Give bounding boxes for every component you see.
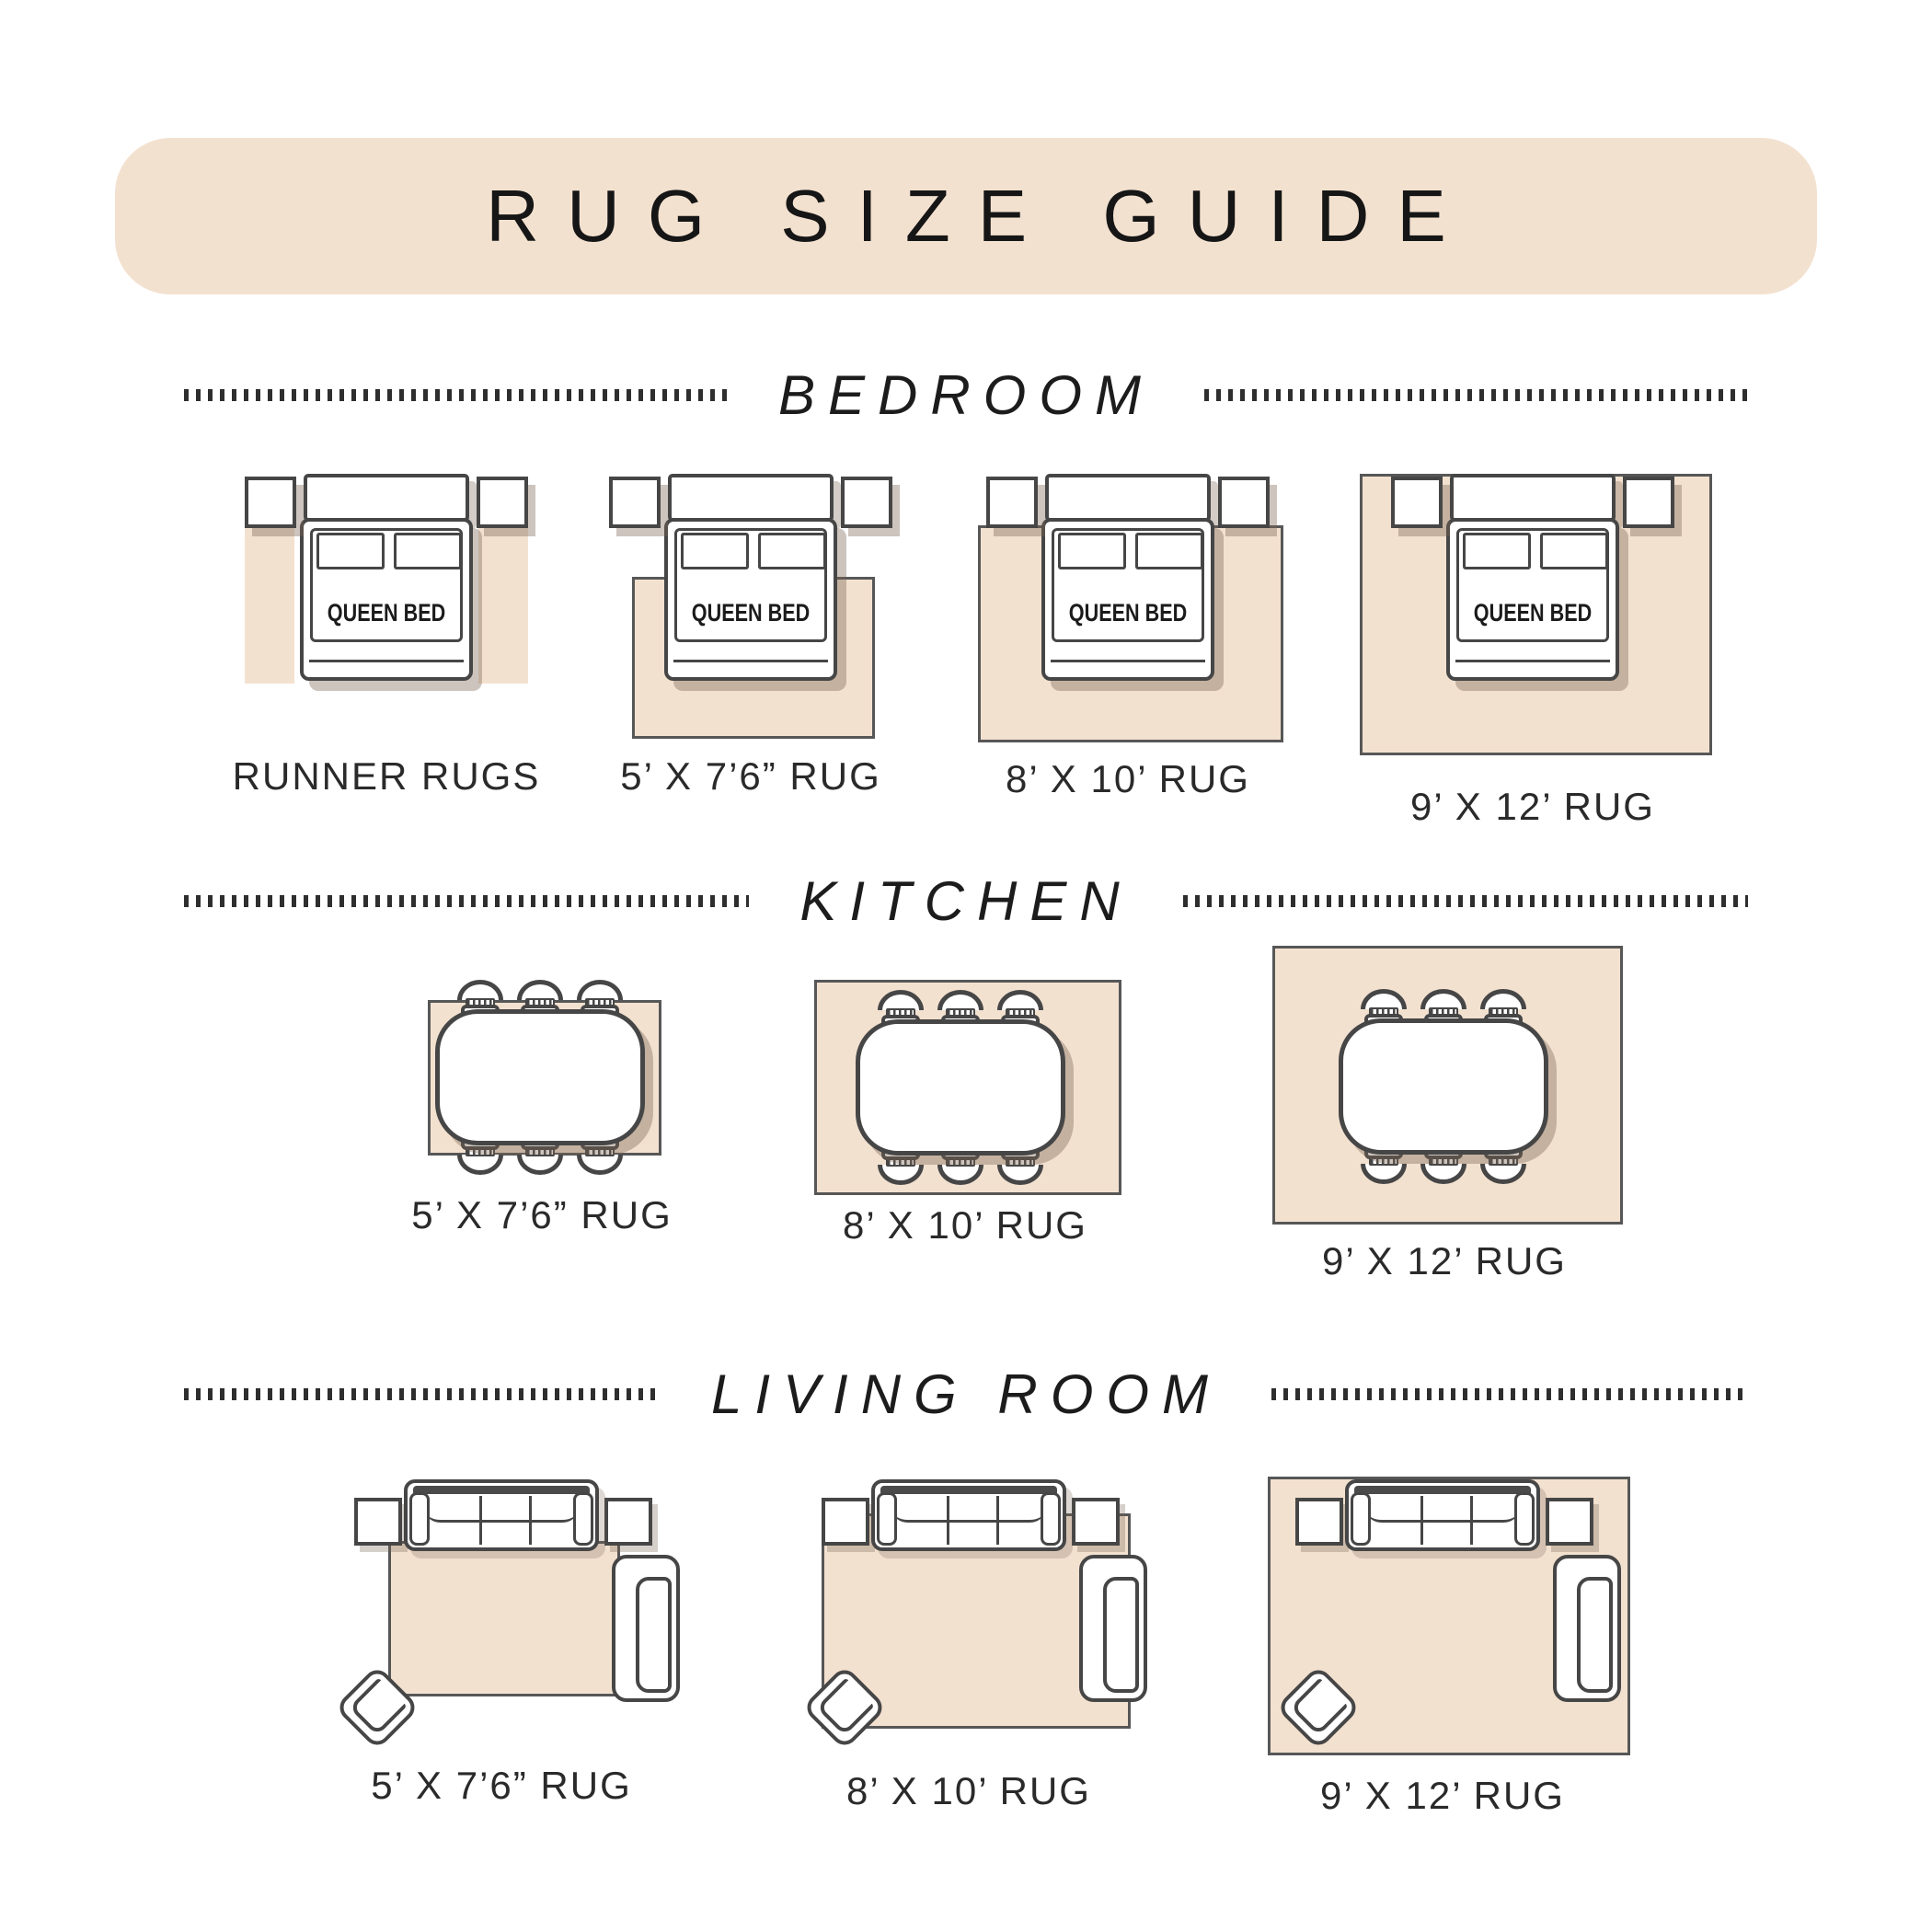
- dotted-divider: [1183, 895, 1748, 907]
- side-table: [1072, 1498, 1120, 1546]
- chair-back-icon: [457, 980, 503, 1000]
- nightstand: [841, 477, 892, 528]
- dotted-divider: [1204, 389, 1748, 401]
- footboard-line: [1455, 660, 1610, 662]
- footboard-line: [673, 660, 828, 662]
- sofa-arm: [877, 1492, 897, 1546]
- chair-back-icon: [1480, 989, 1526, 1009]
- kitchen-diagram-5x76-rug: 5’ X 7’6” RUG: [339, 943, 744, 1293]
- bed-label: QUEEN BED: [684, 599, 817, 627]
- chair-back-icon: [937, 990, 983, 1010]
- diagram-label: 9’ X 12’ RUG: [1242, 1239, 1647, 1283]
- lounge-chair: [1553, 1555, 1621, 1702]
- pillow: [681, 533, 749, 569]
- diagram-label: RUNNER RUGS: [193, 754, 580, 799]
- sofa-back-cushion: [893, 1494, 1044, 1523]
- side-table: [1546, 1498, 1593, 1546]
- queen-bed: QUEEN BED: [1041, 518, 1214, 681]
- footboard-line: [1051, 660, 1205, 662]
- living-room-section-title: LIVING ROOM: [711, 1363, 1221, 1426]
- nightstand: [477, 477, 528, 528]
- nightstand: [245, 477, 296, 528]
- lounge-chair: [1079, 1555, 1147, 1702]
- sofa-cushion-divider: [996, 1496, 999, 1545]
- queen-bed: QUEEN BED: [1446, 518, 1619, 681]
- chair-back-icon: [878, 990, 924, 1010]
- sofa-arm: [409, 1492, 430, 1546]
- chair-back-icon: [997, 1165, 1043, 1185]
- sofa: [404, 1479, 599, 1551]
- kitchen-section-header: KITCHEN: [184, 867, 1748, 935]
- bed-label: QUEEN BED: [320, 599, 453, 627]
- dotted-divider: [184, 1388, 661, 1400]
- pillow: [1058, 533, 1126, 569]
- lounge-chair-seat: [1577, 1577, 1613, 1693]
- bedroom-diagram-8x10-rug: QUEEN BED 8’ X 10’ RUG: [935, 465, 1321, 833]
- chair-back-icon: [997, 990, 1043, 1010]
- pillow: [1135, 533, 1203, 569]
- kitchen-diagram-9x12-rug: 9’ X 12’ RUG: [1242, 943, 1647, 1293]
- diagram-label: 5’ X 7’6” RUG: [558, 754, 944, 799]
- diagram-label: 8’ X 10’ RUG: [763, 1203, 1167, 1248]
- page-title: RUG SIZE GUIDE: [458, 174, 1473, 259]
- sofa-arm: [1514, 1492, 1535, 1546]
- side-table: [1295, 1498, 1343, 1546]
- nightstand: [1218, 477, 1270, 528]
- chair-back-icon: [1361, 1164, 1407, 1184]
- accent-chair-back: [816, 1677, 875, 1736]
- pillow: [1540, 533, 1608, 569]
- nightstand: [986, 477, 1038, 528]
- chair-back-icon: [517, 980, 563, 1000]
- pillow: [394, 533, 462, 569]
- living-room-section-header: LIVING ROOM: [184, 1360, 1748, 1428]
- kitchen-section-title: KITCHEN: [799, 869, 1132, 933]
- queen-bed: QUEEN BED: [664, 518, 837, 681]
- sofa: [871, 1479, 1066, 1551]
- dotted-divider: [1271, 1388, 1748, 1400]
- bed-label: QUEEN BED: [1466, 599, 1599, 627]
- sofa-arm: [573, 1492, 593, 1546]
- chair-back-icon: [457, 1155, 503, 1175]
- dining-set: [426, 980, 654, 1175]
- dotted-divider: [184, 389, 728, 401]
- chair-back-icon: [1480, 1164, 1526, 1184]
- sofa-arm: [1351, 1492, 1371, 1546]
- dining-set: [1329, 989, 1558, 1184]
- chair-back-icon: [1361, 989, 1407, 1009]
- chair-back-icon: [1420, 1164, 1466, 1184]
- bedroom-diagram-5x76-rug: QUEEN BED 5’ X 7’6” RUG: [558, 465, 944, 833]
- accent-chair-back: [1290, 1677, 1349, 1736]
- sofa-cushion-divider: [947, 1496, 949, 1545]
- runner-rug-right: [478, 525, 528, 684]
- bedroom-diagram-runner-rugs: QUEEN BED RUNNER RUGS: [193, 465, 580, 833]
- chair-back-icon: [1420, 989, 1466, 1009]
- bedroom-section-header: BEDROOM: [184, 361, 1748, 429]
- dotted-divider: [184, 895, 749, 907]
- nightstand: [609, 477, 661, 528]
- diagram-label: 9’ X 12’ RUG: [1231, 1774, 1654, 1818]
- chair-back-icon: [577, 980, 623, 1000]
- diagram-label: 5’ X 7’6” RUG: [290, 1764, 713, 1808]
- side-table: [822, 1498, 869, 1546]
- runner-rug-left: [245, 525, 294, 684]
- queen-bed: QUEEN BED: [300, 518, 473, 681]
- dining-table: [1339, 1018, 1548, 1155]
- sofa-cushion-divider: [479, 1496, 482, 1545]
- nightstand: [1623, 477, 1674, 528]
- dining-table: [435, 1009, 645, 1145]
- living-room-diagram-9x12-rug: 9’ X 12’ RUG: [1231, 1467, 1654, 1826]
- sofa-cushion-divider: [1420, 1496, 1423, 1545]
- lounge-chair-seat: [636, 1577, 672, 1693]
- pillow: [1463, 533, 1531, 569]
- diagram-label: 8’ X 10’ RUG: [757, 1769, 1180, 1813]
- sofa-back-cushion: [1367, 1494, 1518, 1523]
- sofa-arm: [1041, 1492, 1061, 1546]
- headboard: [1045, 474, 1211, 522]
- side-table: [354, 1498, 402, 1546]
- diagram-label: 5’ X 7’6” RUG: [339, 1193, 744, 1237]
- living-room-diagram-5x76-rug: 5’ X 7’6” RUG: [290, 1467, 713, 1826]
- title-banner: RUG SIZE GUIDE: [115, 138, 1817, 294]
- headboard: [304, 474, 469, 522]
- sofa-back-cushion: [426, 1494, 577, 1523]
- chair-back-icon: [878, 1165, 924, 1185]
- nightstand: [1391, 477, 1443, 528]
- living-room-diagram-8x10-rug: 8’ X 10’ RUG: [757, 1467, 1180, 1826]
- chair-back-icon: [577, 1155, 623, 1175]
- pillow: [758, 533, 826, 569]
- lounge-chair: [612, 1555, 680, 1702]
- rug-5x76: [388, 1541, 620, 1696]
- dining-table: [856, 1019, 1065, 1156]
- headboard: [1450, 474, 1616, 522]
- side-table: [604, 1498, 652, 1546]
- bedroom-section-title: BEDROOM: [778, 363, 1154, 427]
- bedroom-diagram-9x12-rug: QUEEN BED 9’ X 12’ RUG: [1340, 465, 1726, 833]
- sofa: [1345, 1479, 1540, 1551]
- diagram-label: 8’ X 10’ RUG: [935, 757, 1321, 801]
- lounge-chair-seat: [1103, 1577, 1139, 1693]
- dining-set: [846, 990, 1075, 1185]
- chair-back-icon: [937, 1165, 983, 1185]
- sofa-cushion-divider: [1470, 1496, 1473, 1545]
- sofa-cushion-divider: [529, 1496, 532, 1545]
- accent-chair-back: [349, 1677, 408, 1736]
- diagram-label: 9’ X 12’ RUG: [1340, 785, 1726, 829]
- chair-back-icon: [517, 1155, 563, 1175]
- pillow: [316, 533, 385, 569]
- bed-label: QUEEN BED: [1062, 599, 1194, 627]
- kitchen-diagram-8x10-rug: 8’ X 10’ RUG: [763, 943, 1167, 1293]
- footboard-line: [309, 660, 464, 662]
- headboard: [668, 474, 834, 522]
